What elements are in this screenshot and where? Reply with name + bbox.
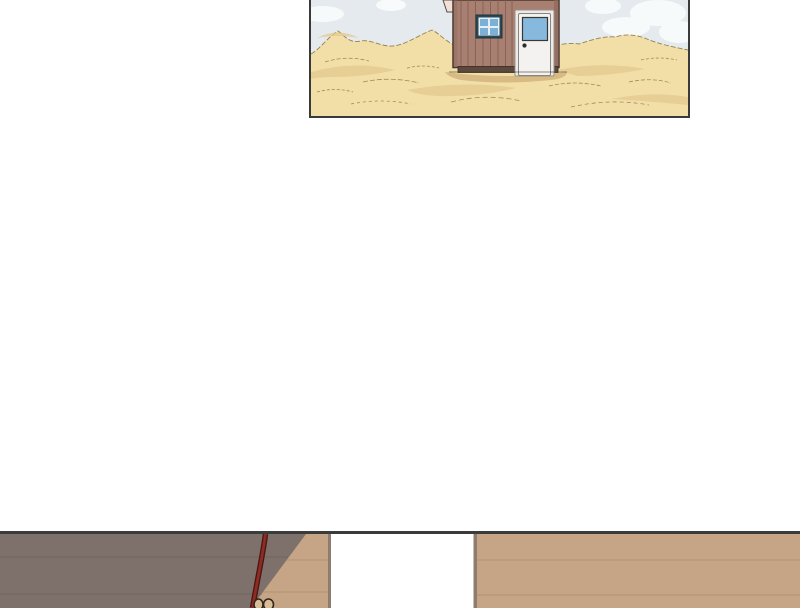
cabin-door: [515, 10, 554, 76]
desert-scene: [311, 0, 688, 116]
page-blank-gap: [0, 118, 800, 531]
interior-scene: [0, 534, 800, 608]
cabin-wall-edge-shade: [554, 0, 559, 67]
open-doorway-light: [331, 534, 474, 608]
door-glass: [523, 18, 548, 41]
door-jamb-right: [474, 534, 478, 608]
cabin: [443, 0, 567, 83]
comic-page: [0, 0, 800, 608]
interior-rope-panel: [0, 531, 800, 608]
door-knob: [522, 43, 526, 47]
cabin-wall-edge-shade-left: [454, 0, 458, 67]
cabin-window: [476, 15, 502, 38]
door-jamb-left: [328, 534, 331, 608]
desert-cabin-panel: [309, 0, 690, 118]
